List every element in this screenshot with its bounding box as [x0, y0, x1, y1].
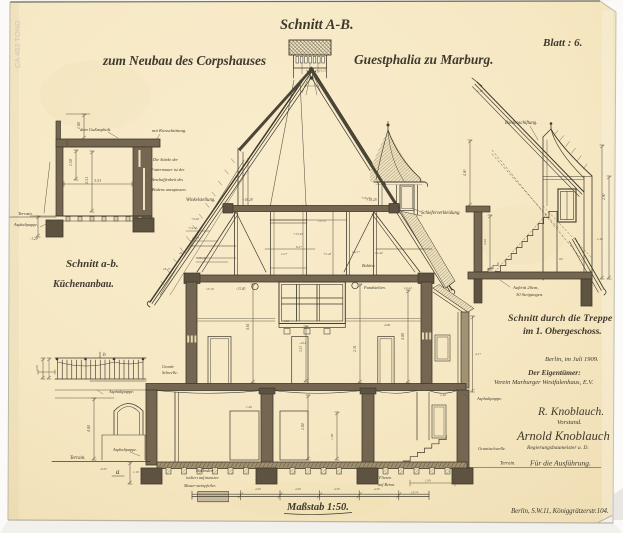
svg-text:8.4+: 8.4+	[296, 245, 302, 249]
svg-text:Küchenanbau.: Küchenanbau.	[52, 279, 114, 290]
svg-text:-4.77: -4.77	[255, 477, 262, 481]
svg-text:dem Gußasphalt.: dem Gußasphalt.	[80, 127, 111, 132]
svg-text:Guestphalia zu Marburg.: Guestphalia zu Marburg.	[354, 52, 494, 67]
svg-text:+3.43: +3.43	[323, 252, 332, 256]
svg-text:Schieferverkleidung.: Schieferverkleidung.	[421, 211, 461, 216]
svg-text:1.40: 1.40	[597, 237, 603, 241]
svg-text:Granitschwelle.: Granitschwelle.	[478, 446, 506, 451]
svg-text:Terrain.: Terrain.	[500, 462, 515, 467]
svg-text:+18.28: +18.28	[366, 198, 377, 202]
svg-text:4.00: 4.00	[401, 333, 405, 340]
svg-text:Maßstab 1:50.: Maßstab 1:50.	[286, 502, 349, 513]
svg-text:Fundstelien.: Fundstelien.	[363, 285, 386, 290]
svg-text:90: 90	[559, 257, 563, 261]
svg-text:1.00: 1.00	[35, 365, 39, 371]
svg-text:Schnitt durch die Treppe: Schnitt durch die Treppe	[508, 313, 613, 324]
svg-text:4.30: 4.30	[295, 487, 301, 491]
svg-text:12.24: 12.24	[404, 286, 412, 290]
svg-text:4.30: 4.30	[334, 487, 340, 491]
svg-text:-1.20: -1.20	[30, 237, 38, 241]
svg-text:Vorstand.: Vorstand.	[557, 419, 582, 426]
svg-text:1.50: 1.50	[69, 159, 73, 166]
svg-text:1.90: 1.90	[330, 434, 334, 440]
svg-text:4.90: 4.90	[463, 170, 467, 176]
svg-text:-0.97: -0.97	[100, 467, 107, 471]
svg-text:4.30: 4.30	[255, 487, 261, 491]
svg-text:+14.45: +14.45	[188, 226, 198, 230]
svg-text:Asphaltpappe.: Asphaltpappe.	[112, 447, 137, 452]
svg-text:-13.40: -13.40	[236, 287, 245, 291]
svg-text:-1.18: -1.18	[476, 89, 483, 93]
svg-text:im 1. Obergeschoss.: im 1. Obergeschoss.	[523, 326, 602, 337]
svg-text:Fußboden: Fußboden	[195, 468, 213, 473]
svg-text:4.00: 4.00	[384, 323, 390, 327]
svg-text:Regierungsbaumeister a. D.: Regierungsbaumeister a. D.	[526, 445, 589, 451]
svg-text:1.40: 1.40	[246, 405, 252, 409]
svg-text:-4.61: -4.61	[282, 319, 290, 323]
svg-text:1.10: 1.10	[133, 470, 139, 474]
svg-text:13.10: 13.10	[206, 287, 214, 291]
svg-text:3.51: 3.51	[94, 178, 101, 183]
svg-text:mit Kiesschüttung.: mit Kiesschüttung.	[152, 128, 186, 133]
svg-text:Bodens anzupassen.: Bodens anzupassen.	[152, 187, 187, 192]
svg-text:b: b	[103, 352, 106, 358]
svg-text:14.15: 14.15	[192, 236, 200, 240]
svg-text:-4.77: -4.77	[356, 477, 363, 481]
svg-text:4.40: 4.40	[483, 239, 487, 245]
svg-text:2.90: 2.90	[602, 194, 606, 200]
svg-text:44.2+: 44.2+	[179, 251, 187, 255]
svg-text:-4.77: -4.77	[451, 477, 458, 481]
svg-text:Berlin, im Juli 1909.: Berlin, im Juli 1909.	[545, 356, 599, 363]
svg-text:3.11: 3.11	[299, 346, 303, 352]
svg-text:Der Eigentümer:: Der Eigentümer:	[527, 368, 581, 377]
svg-text:R. Knoblauch.: R. Knoblauch.	[537, 406, 604, 418]
svg-text:14.40: 14.40	[375, 251, 383, 255]
svg-text:+18.28: +18.28	[242, 198, 253, 202]
svg-text:+15.10: +15.10	[196, 256, 206, 260]
svg-text:Arnold Knoblauch: Arnold Knoblauch	[516, 429, 610, 443]
svg-text:+3.28: +3.28	[191, 217, 199, 221]
svg-text:Schnitt a-b.: Schnitt a-b.	[66, 258, 119, 270]
svg-text:2.2+: 2.2+	[281, 252, 288, 256]
svg-text:Winkelstellung.: Winkelstellung.	[186, 198, 215, 203]
svg-text:Mauer-steinpfeiler.: Mauer-steinpfeiler.	[183, 483, 216, 488]
svg-text:4.00: 4.00	[87, 425, 91, 432]
svg-text:Berlin, S.W.11, Königgrätzerst: Berlin, S.W.11, Königgrätzerstr.104.	[511, 507, 609, 515]
svg-text:Terrain.: Terrain.	[70, 456, 85, 461]
svg-text:Asphaltpappe.: Asphaltpappe.	[13, 222, 38, 227]
svg-text:-4.77: -4.77	[140, 477, 147, 481]
svg-text:1.90: 1.90	[425, 479, 431, 483]
svg-text:Terrain.: Terrain.	[18, 211, 33, 216]
svg-text:4.1+: 4.1+	[475, 352, 481, 356]
svg-text:Für die Ausführung.: Für die Ausführung.	[529, 459, 591, 468]
svg-text:Blatt : 6.: Blatt : 6.	[542, 37, 582, 49]
svg-text:Bohlen.: Bohlen.	[362, 263, 376, 268]
svg-text:14.2+: 14.2+	[352, 250, 360, 254]
svg-text:Schwelle.: Schwelle.	[162, 370, 178, 375]
svg-text:2.31: 2.31	[353, 345, 357, 352]
svg-text:Bohlenschiftung.: Bohlenschiftung.	[505, 121, 537, 126]
svg-text:Verein Marburger Westfalenhaus: Verein Marburger Westfalenhaus, E.V.	[494, 379, 594, 386]
svg-text:2.84: 2.84	[301, 423, 305, 430]
svg-text:Asphaltpappe.: Asphaltpappe.	[476, 396, 502, 401]
svg-text:CA 452 TOND: CA 452 TOND	[13, 20, 22, 68]
svg-text:Fliesen: Fliesen	[378, 475, 391, 480]
svg-text:13.74: 13.74	[318, 219, 326, 223]
svg-text:+13.45: +13.45	[293, 232, 303, 236]
svg-text:Granit-: Granit-	[162, 364, 175, 369]
svg-text:Beschaffenheit des: Beschaffenheit des	[151, 177, 183, 182]
svg-text:30 Steigungen.: 30 Steigungen.	[516, 292, 543, 297]
svg-text:Die Stärke der: Die Stärke der	[152, 157, 178, 162]
svg-text:-4.61: -4.61	[299, 341, 306, 345]
svg-text:18.4+: 18.4+	[163, 267, 171, 271]
svg-text:isoliert auf massive: isoliert auf massive	[186, 475, 219, 480]
svg-text:a: a	[116, 468, 120, 476]
svg-text:1.40: 1.40	[440, 393, 446, 397]
svg-text:2.51: 2.51	[84, 177, 89, 184]
svg-text:Schnitt A-B.: Schnitt A-B.	[280, 17, 354, 33]
svg-text:19.74: 19.74	[411, 491, 419, 495]
svg-text:auf Beton.: auf Beton.	[378, 482, 395, 487]
svg-text:4.30: 4.30	[374, 487, 380, 491]
svg-text:Futtermauer ist der: Futtermauer ist der	[150, 167, 185, 172]
svg-text:zum Neubau des Corpshauses: zum Neubau des Corpshauses	[102, 53, 266, 68]
svg-text:+21.10: +21.10	[317, 69, 327, 73]
svg-text:4.61: 4.61	[246, 323, 250, 330]
